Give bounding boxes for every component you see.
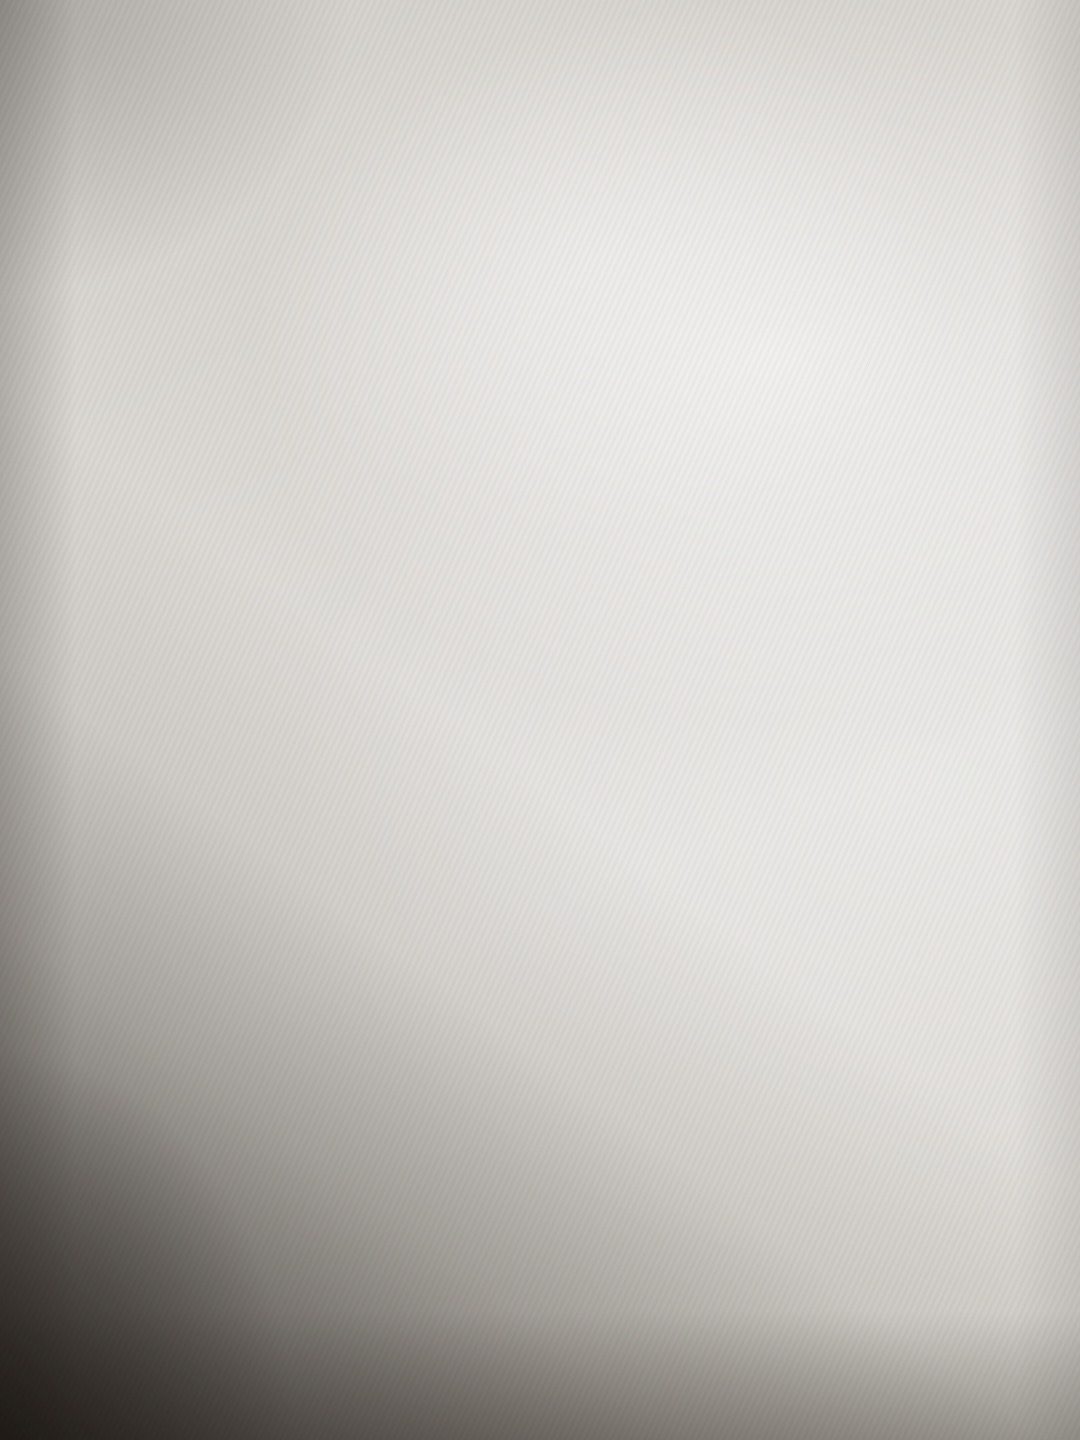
paper-grain: [0, 0, 1080, 1440]
photo-of-floor-plan: 1 этаж 10 8.1 1 17.3 2 9.4 8 8.8 3 18.9 …: [0, 0, 1080, 1440]
